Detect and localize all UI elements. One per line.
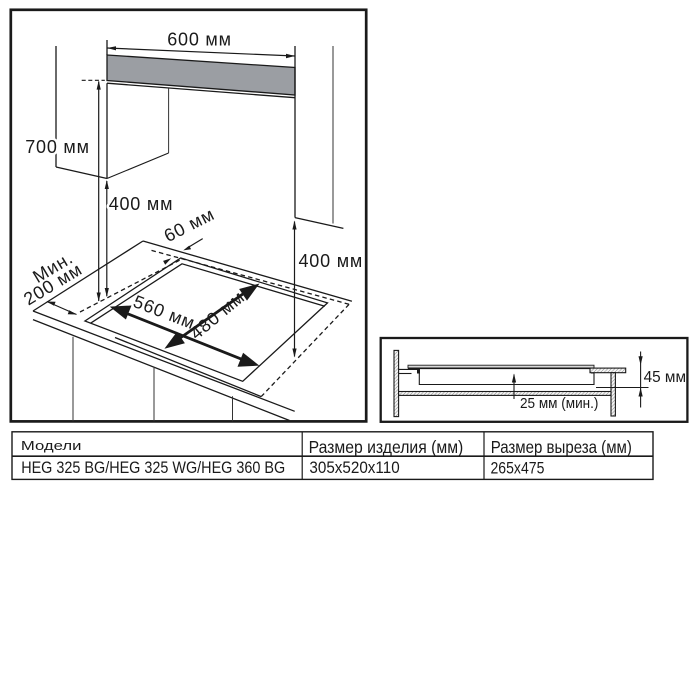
svg-text:HEG 325 BG/HEG 325 WG/HEG 360: HEG 325 BG/HEG 325 WG/HEG 360 BG (21, 458, 285, 477)
svg-text:Размер изделия (мм): Размер изделия (мм) (309, 437, 464, 457)
svg-text:700 мм: 700 мм (25, 137, 90, 157)
svg-text:Модели: Модели (21, 438, 82, 453)
svg-text:400 мм: 400 мм (299, 251, 364, 271)
svg-text:400 мм: 400 мм (109, 194, 174, 214)
svg-text:45 мм: 45 мм (644, 369, 686, 386)
svg-text:Размер выреза (мм): Размер выреза (мм) (491, 437, 632, 457)
svg-text:265x475: 265x475 (491, 458, 545, 477)
svg-text:600 мм: 600 мм (167, 29, 232, 49)
svg-text:25 мм (мин.): 25 мм (мин.) (520, 396, 598, 412)
svg-text:305x520x110: 305x520x110 (309, 458, 399, 477)
